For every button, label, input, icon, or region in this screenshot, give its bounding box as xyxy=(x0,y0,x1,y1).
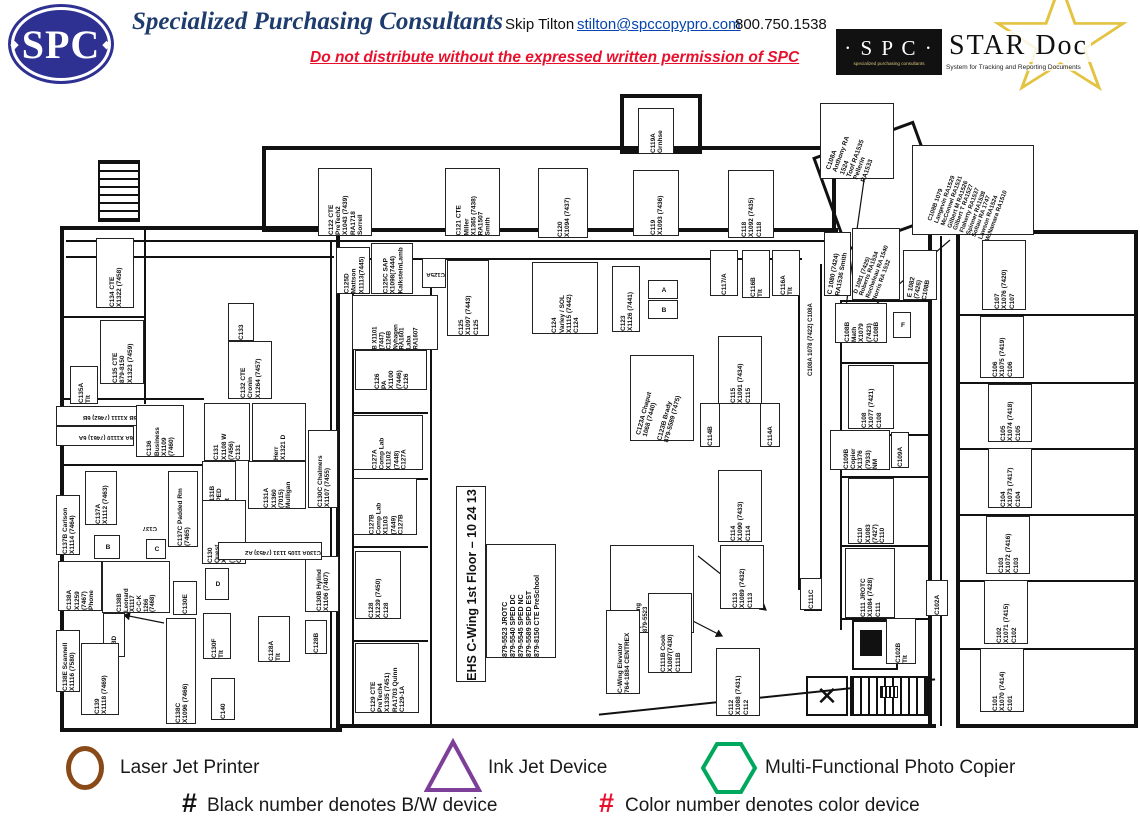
wall xyxy=(840,362,928,364)
room-C107: C107 X1076 (7420) C107 xyxy=(982,240,1026,310)
wall xyxy=(60,226,342,230)
room-C139: C139 X1118 (7469) xyxy=(81,643,119,715)
room-boxC: C xyxy=(146,539,166,559)
legend-inkjet-label: Ink Jet Device xyxy=(488,757,607,779)
room-C129: C129 CTE PreTech4 X1335 (7451) RA1703 Qu… xyxy=(355,643,419,713)
room-C131: C131 X1108 W (7456) C131 xyxy=(204,403,250,461)
room-C130C: C130C Chalmers X1107 (7455) xyxy=(308,430,338,508)
legend-copier-label: Multi-Functional Photo Copier xyxy=(765,757,1015,779)
stair-cross: ✕ xyxy=(806,676,848,716)
black-hash-symbol: # xyxy=(182,788,197,819)
room-C106: C106 X1075 (7419) C106 xyxy=(980,316,1024,378)
photo-copier-icon xyxy=(700,741,758,795)
room-C110: C110 X1083 (7427) C110 xyxy=(848,478,894,544)
room-C102B: C102B Tlt xyxy=(886,618,916,664)
room-6A: 6A X1110 (7461) 6A xyxy=(56,426,134,446)
room-C108A-wall: C108A 1078 (7422) C108A xyxy=(804,276,818,378)
room-C132: C132 CTE Cronin X1264 (7457) xyxy=(228,341,272,399)
room-boxB: B xyxy=(648,300,678,319)
room-C138C: C138C X1096 (7466) xyxy=(166,618,196,724)
wall xyxy=(958,382,1134,384)
room-C123AB: C123A Chaput 1068 (7440) C123B Brady 879… xyxy=(630,355,694,441)
room-C126B: B X1101 (7447) C126B Nyhagen RA1601 Laba… xyxy=(352,295,438,350)
room-C131A: C131A X1360 (7015) Mulligan xyxy=(248,461,306,509)
room-6B: 6B X1111 (7462) 6B xyxy=(56,406,138,426)
room-C124: C124 Varley / SOL X1115 (7442) C124 xyxy=(532,262,598,334)
wall xyxy=(262,146,266,230)
room-E-1082: E 1082 (7426) C108B xyxy=(903,250,937,300)
wall xyxy=(336,724,936,728)
room-C128A: C128A Tlt xyxy=(258,616,290,662)
room-C137C: C137C Padded Rm (7465) xyxy=(168,471,198,547)
room-C137: C137 xyxy=(125,520,159,536)
room-C111B: C111B Cook X1087(7430) C111B xyxy=(648,593,692,673)
wall xyxy=(798,264,800,590)
room-C117A: C117/A xyxy=(710,250,738,296)
room-C126: C126 PA X1100 (7446) C126 xyxy=(355,350,427,390)
room-C104: C104 X1073 (7417) C104 xyxy=(988,448,1032,508)
room-C116A: C116A Tlt xyxy=(772,250,800,296)
wall xyxy=(958,514,1134,516)
room-boxB2: B xyxy=(94,535,120,559)
room-C109A: C109A xyxy=(891,432,909,468)
room-C115: C115 X1091 (7434) C115 xyxy=(718,336,762,404)
wall xyxy=(352,546,428,548)
device-mark xyxy=(880,686,898,698)
room-C102A: C102A xyxy=(926,580,948,616)
room-C138E: C138E Scannell X1116 (7580) xyxy=(56,630,80,692)
room-C108B-Math: C108B Math X1079 (7423) C108B xyxy=(835,303,887,343)
wall xyxy=(840,545,928,547)
room-C119: C119 X1093 (7436) xyxy=(633,170,679,236)
wall xyxy=(820,264,822,590)
room-C114B: C114B xyxy=(700,403,720,447)
wall xyxy=(60,316,144,318)
room-C137A: C137A X1112 (7463) xyxy=(85,471,117,525)
room-C101: C101 X1070 (7414) C101 xyxy=(980,648,1024,712)
room-C128: C128 X1239 (7450) C128 xyxy=(355,551,401,619)
room-C114: C114 X1090 (7433) C114 xyxy=(718,470,762,542)
room-C138B: C138B Leonard X1117 C-C-K 1266 (7468) xyxy=(102,561,170,613)
room-C127A: C127A Comp Lab X1102 (7448) C127A xyxy=(353,415,423,470)
room-boxD: D xyxy=(205,568,229,600)
room-C108A-box: C108A Anthony RA 1524 Toof RA1535 Peller… xyxy=(820,103,894,179)
room-C108: C108 X1077 (7421) C108 xyxy=(848,365,894,429)
room-C128B: C128B xyxy=(305,620,327,654)
room-boxA: A xyxy=(648,280,678,299)
room-C131-Herr: Herr X1321 D xyxy=(252,403,306,461)
wall xyxy=(698,94,702,154)
room-C125C: C125C SAP X1098(7444) KalksteinLamb xyxy=(371,243,413,294)
wall xyxy=(60,728,342,732)
room-C135A: C135A Tlt xyxy=(70,366,98,404)
room-C108B-list: C108B 1079 Langevin RA1529 McConnel RA15… xyxy=(912,145,1034,235)
room-C121: C121 CTE Miller X1365 (7438) RA1507 Smit… xyxy=(445,168,500,236)
room-boxF: F xyxy=(893,312,911,338)
room-C130F: C130F Tlt xyxy=(203,613,231,659)
room-C119A: C119A Grnhse xyxy=(638,108,674,154)
legend-laser-label: Laser Jet Printer xyxy=(120,757,259,779)
room-phones: 879-5523 JROTC 879-5540 SPED DC 879-5545… xyxy=(486,544,556,658)
wall xyxy=(620,94,624,154)
wall xyxy=(262,146,838,150)
wall xyxy=(958,448,1134,450)
wall xyxy=(60,464,208,466)
room-C136: C136 Business X1109 (7460) xyxy=(136,405,184,457)
laser-jet-printer-icon xyxy=(66,746,104,790)
page: ◆SPC◆ Specialized Purchasing Consultants… xyxy=(0,0,1140,828)
room-elevator: C-Wing Elevator 764-1884 CENTREX xyxy=(606,610,640,694)
room-C134: C134 CTE X1322 (7458) xyxy=(96,238,134,308)
wall xyxy=(956,724,1138,728)
wall xyxy=(956,230,960,728)
room-C102: C102 X1071 (7415) C102 xyxy=(984,580,1028,644)
room-title: EHS C-Wing 1st Floor – 10 24 13 xyxy=(456,486,486,682)
ink-jet-device-icon xyxy=(424,738,482,794)
room-C125A: C125A xyxy=(422,258,446,288)
room-C122: C122 CTE PreTech2 X1043 (7439) RA1718 So… xyxy=(318,168,372,236)
room-C118: C118 X1092 (7435) C118 xyxy=(728,170,774,238)
room-C140: C140 xyxy=(211,678,235,720)
room-C135: C135 CTE 879-8150 X1323 (7459) xyxy=(100,320,144,384)
room-C111: C111 JROTC X1084 (7428) C111 xyxy=(845,548,895,618)
room-C130B: C130B Hylind X1106 (7407) xyxy=(305,556,339,612)
red-hash-symbol: # xyxy=(599,788,614,819)
room-C127B: C127B Comp Lab X1103 (7449) C127B xyxy=(353,478,417,535)
wall xyxy=(1134,230,1138,728)
wall xyxy=(66,240,832,242)
room-C111C: C111C xyxy=(800,578,822,610)
room-C138A: C138A X1259 (7467) Phone xyxy=(58,561,102,611)
room-C103: C103 X1072 (7416) C103 xyxy=(986,516,1030,574)
room-C130E: C130E xyxy=(173,581,197,615)
wall xyxy=(352,412,428,414)
room-C109B: C109B Copier X1376 (7933) NM xyxy=(830,430,890,470)
room-C113: C113 X1089 (7432) C113 xyxy=(720,545,764,609)
room-C105: C105 X1074 (7418) C105 xyxy=(988,384,1032,442)
wall xyxy=(620,94,702,98)
room-C137B: C137B Carlson X1114 (7464) xyxy=(56,495,80,555)
wall xyxy=(352,640,428,642)
room-C125: C125 X1097 (7443) C125 xyxy=(447,260,489,336)
room-C114A: C114A xyxy=(760,403,780,447)
floor-plan: ✕C122 CTE PreTech2 X1043 (7439) RA1718 S… xyxy=(0,0,1140,740)
room-C130A: C130A 1105 1131 (7453) A2 xyxy=(218,542,322,560)
room-C123: C123 X1126 (7441) xyxy=(612,266,640,332)
room-C112: C112 X1088 (7431) C112 xyxy=(716,648,760,716)
legend-bw-note: Black number denotes B/W device xyxy=(207,795,497,817)
legend-color-note: Color number denotes color device xyxy=(625,795,920,817)
room-C116B: C116B Tlt xyxy=(742,250,770,298)
room-C125D: C125D Mattson X1113(7445) xyxy=(336,247,370,294)
room-C133: C133 xyxy=(228,303,254,341)
room-C120: C120 X1094 (7437) xyxy=(538,168,588,238)
wall xyxy=(940,236,942,726)
stairs xyxy=(98,160,140,222)
wall xyxy=(928,232,932,728)
room-D-1081: D 1081 (7425) Roberts RA1534 Rocheleau R… xyxy=(852,228,900,300)
